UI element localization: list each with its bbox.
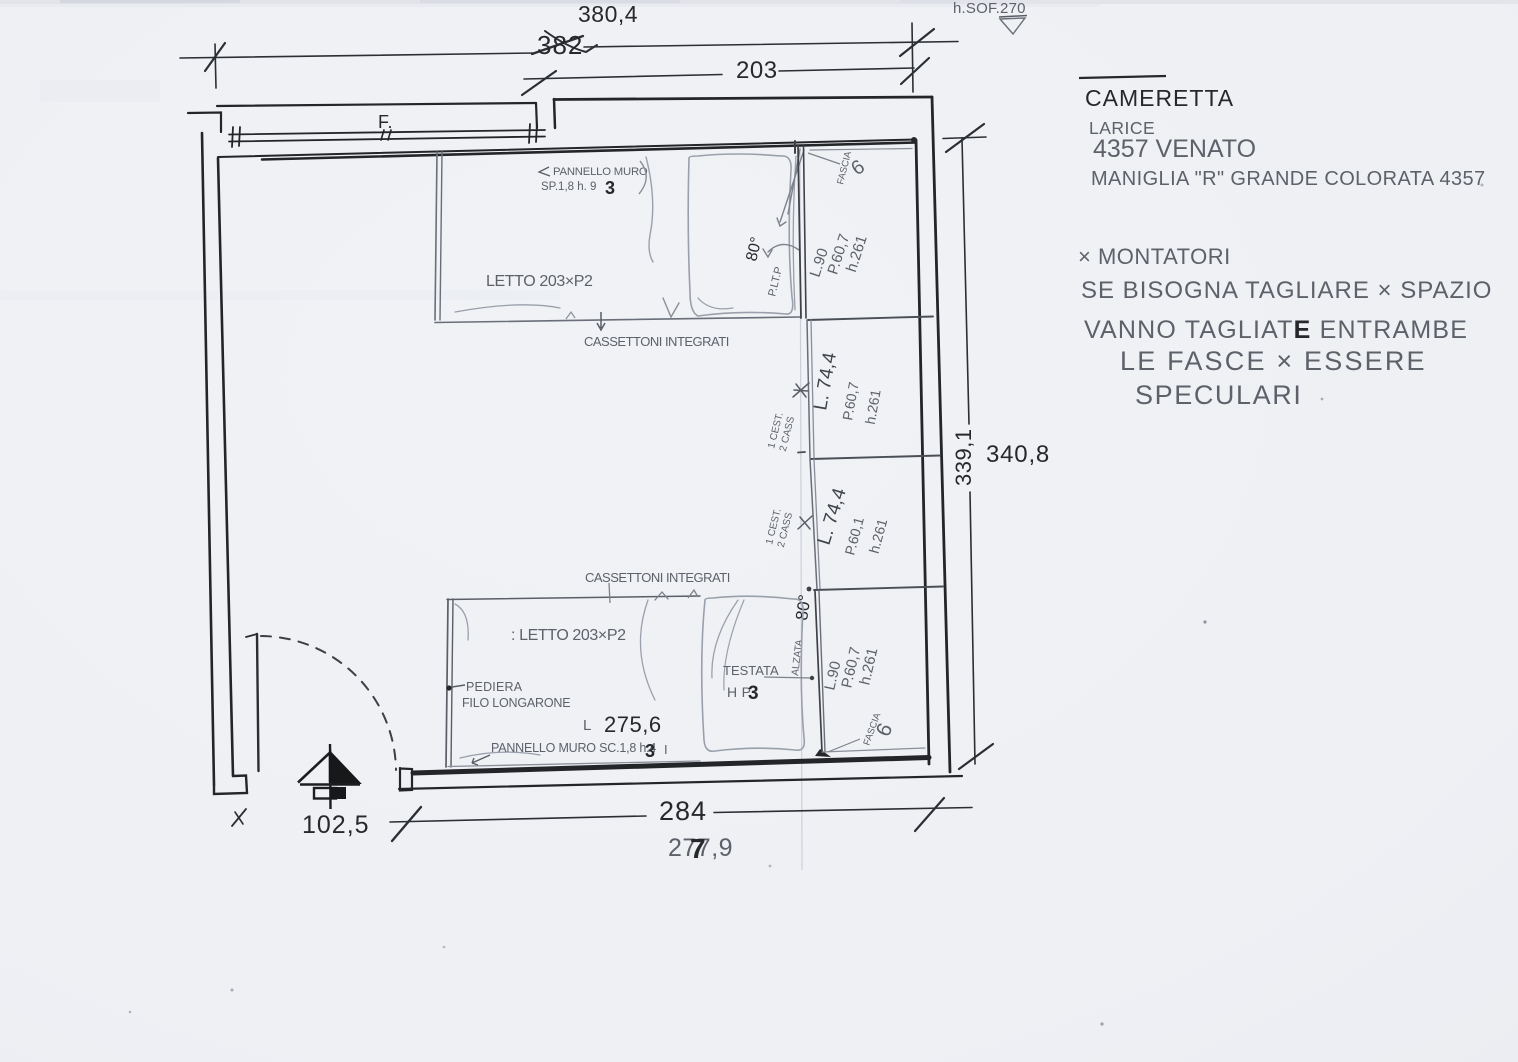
svg-text:380,4: 380,4 xyxy=(578,1,638,27)
svg-text:3: 3 xyxy=(645,741,655,761)
svg-text:275,6: 275,6 xyxy=(604,712,662,737)
svg-text:SE BISOGNA TAGLIARE × SPAZIO: SE BISOGNA TAGLIARE × SPAZIO xyxy=(1081,277,1492,304)
svg-text:FILO LONGARONE: FILO LONGARONE xyxy=(462,696,570,710)
svg-text:h.SOF.270: h.SOF.270 xyxy=(953,0,1026,17)
svg-text:LE FASCE × ESSERE: LE FASCE × ESSERE xyxy=(1120,346,1427,376)
svg-text:TESTATA: TESTATA xyxy=(723,663,779,678)
svg-text:284: 284 xyxy=(659,796,707,826)
svg-text:LETTO 203×P2: LETTO 203×P2 xyxy=(486,273,593,290)
svg-text:3: 3 xyxy=(748,683,759,704)
svg-text:CASSETTONI INTEGRATI: CASSETTONI INTEGRATI xyxy=(585,570,730,585)
svg-text:4357 VENATO: 4357 VENATO xyxy=(1093,135,1256,163)
svg-text:: LETTO 203×P2: : LETTO 203×P2 xyxy=(511,627,626,644)
svg-text:339,1: 339,1 xyxy=(951,428,976,486)
svg-text:3: 3 xyxy=(605,178,615,198)
svg-text:102,5: 102,5 xyxy=(302,811,370,839)
svg-text:F.: F. xyxy=(378,112,393,132)
svg-text:340,8: 340,8 xyxy=(986,441,1050,468)
svg-text:PEDIERA: PEDIERA xyxy=(466,680,523,694)
svg-text:VANNO TAGLIATE ENTRAMBE: VANNO TAGLIATE ENTRAMBE xyxy=(1084,316,1468,344)
svg-text:203: 203 xyxy=(736,57,778,84)
svg-text:CASSETTONI INTEGRATI: CASSETTONI INTEGRATI xyxy=(584,334,729,349)
svg-text:× MONTATORI: × MONTATORI xyxy=(1078,244,1231,269)
svg-text:7: 7 xyxy=(690,833,706,864)
svg-text:MANIGLIA "R" GRANDE COLORATA 4: MANIGLIA "R" GRANDE COLORATA 4357 xyxy=(1091,168,1486,190)
svg-text:CAMERETTA: CAMERETTA xyxy=(1085,85,1234,111)
svg-text:I: I xyxy=(664,742,668,757)
svg-text:PANNELLO MURO SC.1,8 h.4: PANNELLO MURO SC.1,8 h.4 xyxy=(491,741,656,755)
svg-text:L: L xyxy=(583,717,591,734)
svg-text:SP.1,8 h. 9: SP.1,8 h. 9 xyxy=(541,181,596,193)
svg-text:SPECULARI: SPECULARI xyxy=(1135,380,1302,410)
svg-text:382: 382 xyxy=(537,30,583,60)
svg-text:PANNELLO MURO: PANNELLO MURO xyxy=(553,166,648,178)
